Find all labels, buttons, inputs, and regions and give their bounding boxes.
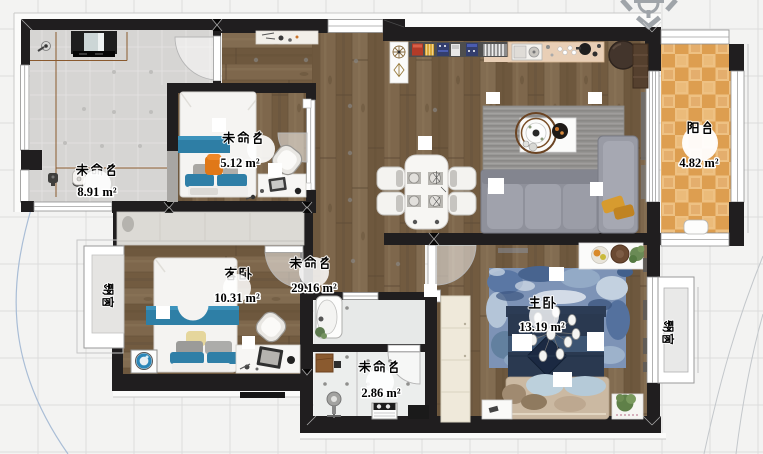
svg-text:2.86 m²: 2.86 m²	[361, 386, 400, 400]
svg-text:13.19 m²: 13.19 m²	[519, 320, 565, 334]
svg-text:4.82 m²: 4.82 m²	[679, 156, 718, 170]
svg-text:8.91 m²: 8.91 m²	[77, 185, 116, 199]
svg-text:10.31 m²: 10.31 m²	[214, 291, 260, 305]
svg-text:29.16 m²: 29.16 m²	[291, 281, 337, 295]
svg-text:5.12 m²: 5.12 m²	[220, 156, 259, 170]
